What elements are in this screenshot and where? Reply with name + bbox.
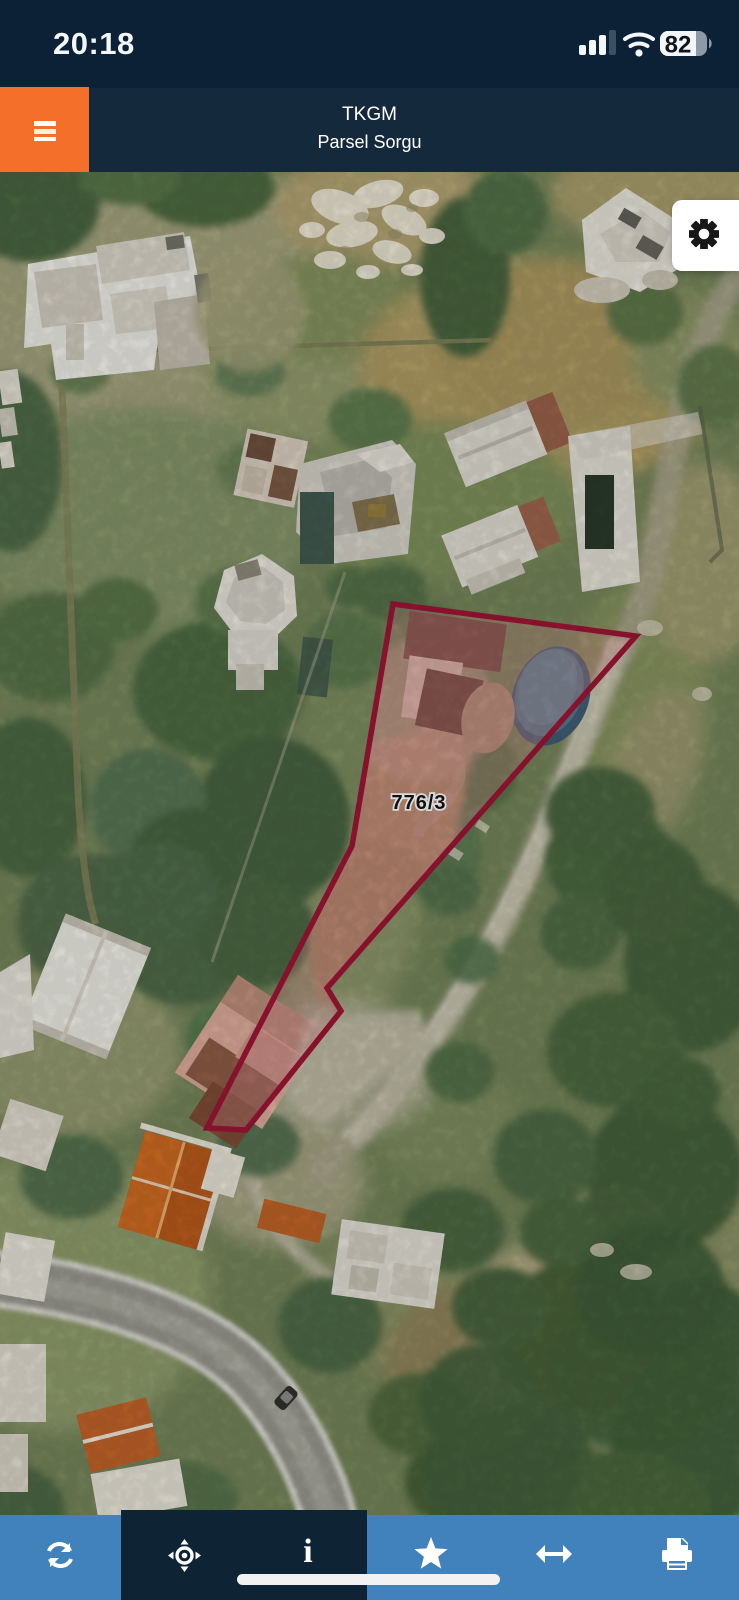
svg-text:82: 82 — [665, 32, 692, 59]
